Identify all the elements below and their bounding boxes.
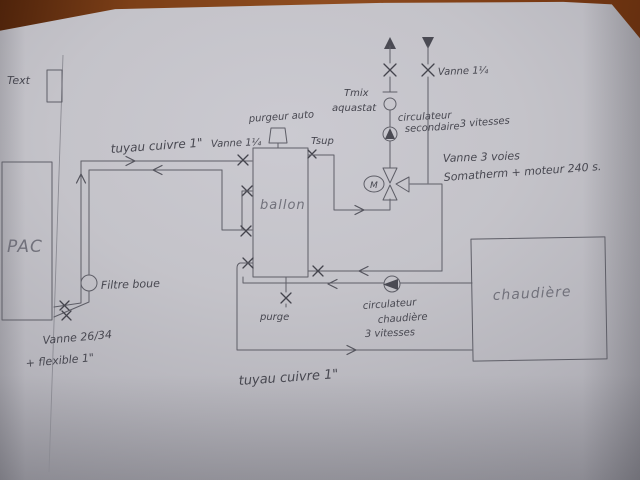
heating-schematic: Text PAC tuyau cuivre 1" Vanne 1¼ Filtre… [0, 0, 640, 480]
ballon-label: ballon [260, 198, 306, 213]
aquastat-icon [384, 98, 396, 110]
pump-secondary-rotor-icon [385, 128, 395, 139]
chaudiere-label: chaudière [492, 284, 572, 304]
valve-supply-icon [384, 64, 396, 76]
outdoor-sensor-icon [47, 70, 62, 102]
valve-tsup-icon [308, 150, 316, 158]
air-vent-icon [269, 128, 287, 148]
purgeur-auto-label: purgeur auto [247, 109, 314, 125]
pipe-valve-right-port [410, 184, 442, 271]
pac-label: PAC [7, 237, 43, 257]
pipe-pac-return-drop [222, 170, 252, 230]
filtre-boue-label: Filtre boue [101, 277, 161, 292]
circulateur-chaudiere-label-3: 3 vitesses [365, 327, 415, 340]
vanne-3-voies-label-1: Vanne 3 voies [443, 149, 521, 165]
tuyau-cuivre-top-label: tuyau cuivre 1" [110, 136, 203, 156]
circulateur-chaudiere-label-2: chaudière [377, 311, 428, 326]
outdoor-sensor-label: Text [7, 74, 31, 87]
arrow-left-icon [328, 280, 337, 289]
valve-ballon-3-icon [241, 226, 251, 236]
tsup-label: Tsup [311, 136, 334, 147]
circulateur-chaudiere-label-1: circulateur [362, 297, 417, 312]
three-way-valve-right-icon [396, 177, 409, 192]
pipe-chaudiere-supply [243, 277, 472, 283]
valve-pac-2-icon [62, 311, 71, 320]
pipe-pac-return [54, 170, 222, 317]
purge-label: purge [259, 312, 289, 323]
three-way-valve-top-icon [383, 168, 397, 183]
valve-purge-icon [281, 293, 291, 303]
tmix-label: Tmix [344, 88, 369, 99]
valve-motor-label: M [370, 181, 378, 191]
tuyau-cuivre-bottom-label: tuyau cuivre 1" [238, 367, 339, 389]
flexible-label: + flexible 1" [25, 351, 94, 370]
wall-line [49, 55, 63, 472]
circulateur-secondaire-label-2: secondaire [405, 121, 460, 135]
valve-ballon-1-icon [238, 155, 248, 165]
circulateur-secondaire-label-3: 3 vitesses [459, 116, 510, 130]
vanne-26-34-label: Vanne 26/34 [42, 328, 112, 347]
valve-return-icon [422, 64, 434, 76]
pipe-ballon-mid-branch [242, 191, 252, 229]
three-way-valve-bottom-icon [383, 185, 397, 200]
vanne-retour-label: Vanne 1¼ [438, 64, 489, 78]
aquastat-label: aquastat [332, 103, 377, 114]
pipe-ballon-to-chaudiere [237, 263, 472, 350]
mud-filter-icon [81, 275, 97, 291]
